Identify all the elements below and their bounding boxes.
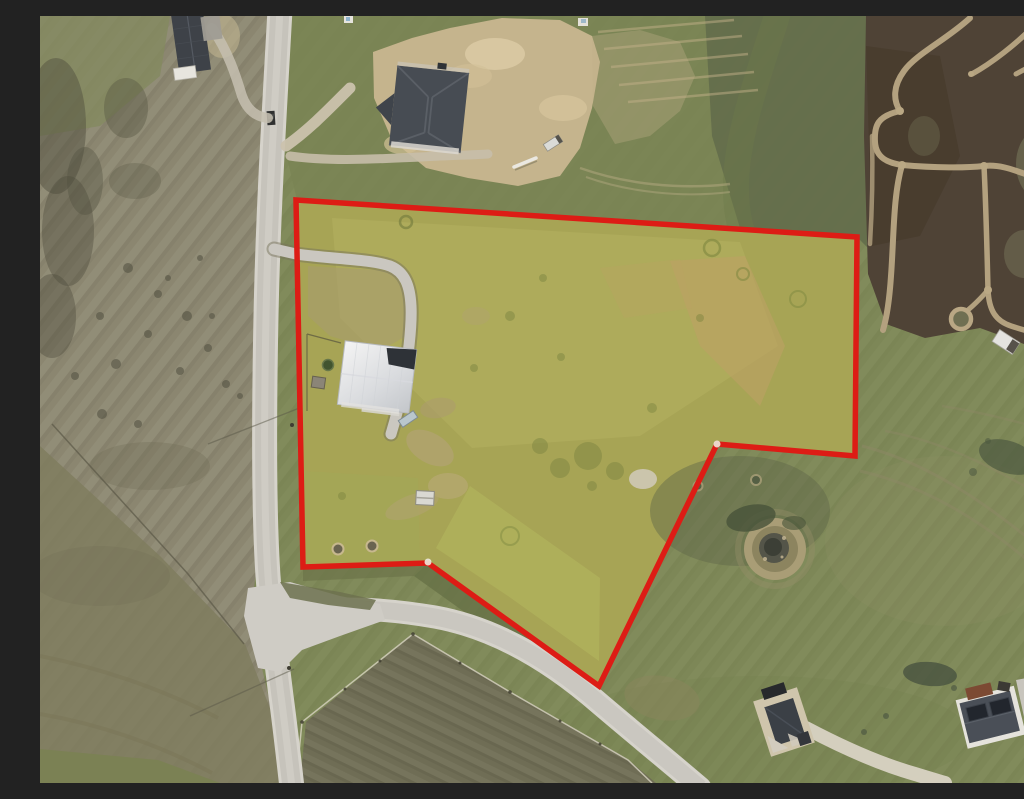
house-driveway-lower	[290, 154, 488, 159]
parcel-trailer	[416, 491, 435, 506]
aerial-photo	[40, 16, 1024, 783]
blob6	[109, 163, 161, 199]
pond-brush2	[782, 516, 806, 530]
parcel-gravel-spot	[629, 469, 657, 489]
septic-lid-1	[333, 544, 344, 555]
trail-edge	[870, 136, 872, 244]
blob4	[104, 78, 148, 138]
blue-bit-2	[581, 19, 586, 23]
trail-ring-feature	[951, 309, 971, 329]
p5	[462, 307, 490, 325]
chimney	[437, 63, 447, 70]
aerial-photo-svg	[40, 16, 1024, 783]
blob7	[90, 442, 210, 490]
blob5	[67, 147, 103, 215]
pond-core	[764, 538, 782, 556]
tl-gray-structure	[200, 16, 222, 41]
green-tank	[323, 360, 334, 371]
boundary-corner-marker-2	[425, 559, 432, 566]
blue-bit-1	[346, 17, 350, 21]
roof	[389, 65, 469, 152]
tl-barn-white-object	[173, 66, 196, 81]
edge	[416, 498, 434, 499]
small-shed	[311, 376, 325, 389]
patch4	[908, 116, 940, 156]
septic-lid-2	[367, 541, 378, 552]
dark-dot-2	[751, 475, 761, 485]
boundary-corner-marker-1	[714, 441, 721, 448]
body	[173, 66, 196, 81]
pile2	[539, 95, 587, 121]
scene	[40, 16, 1024, 783]
barn	[337, 341, 417, 415]
